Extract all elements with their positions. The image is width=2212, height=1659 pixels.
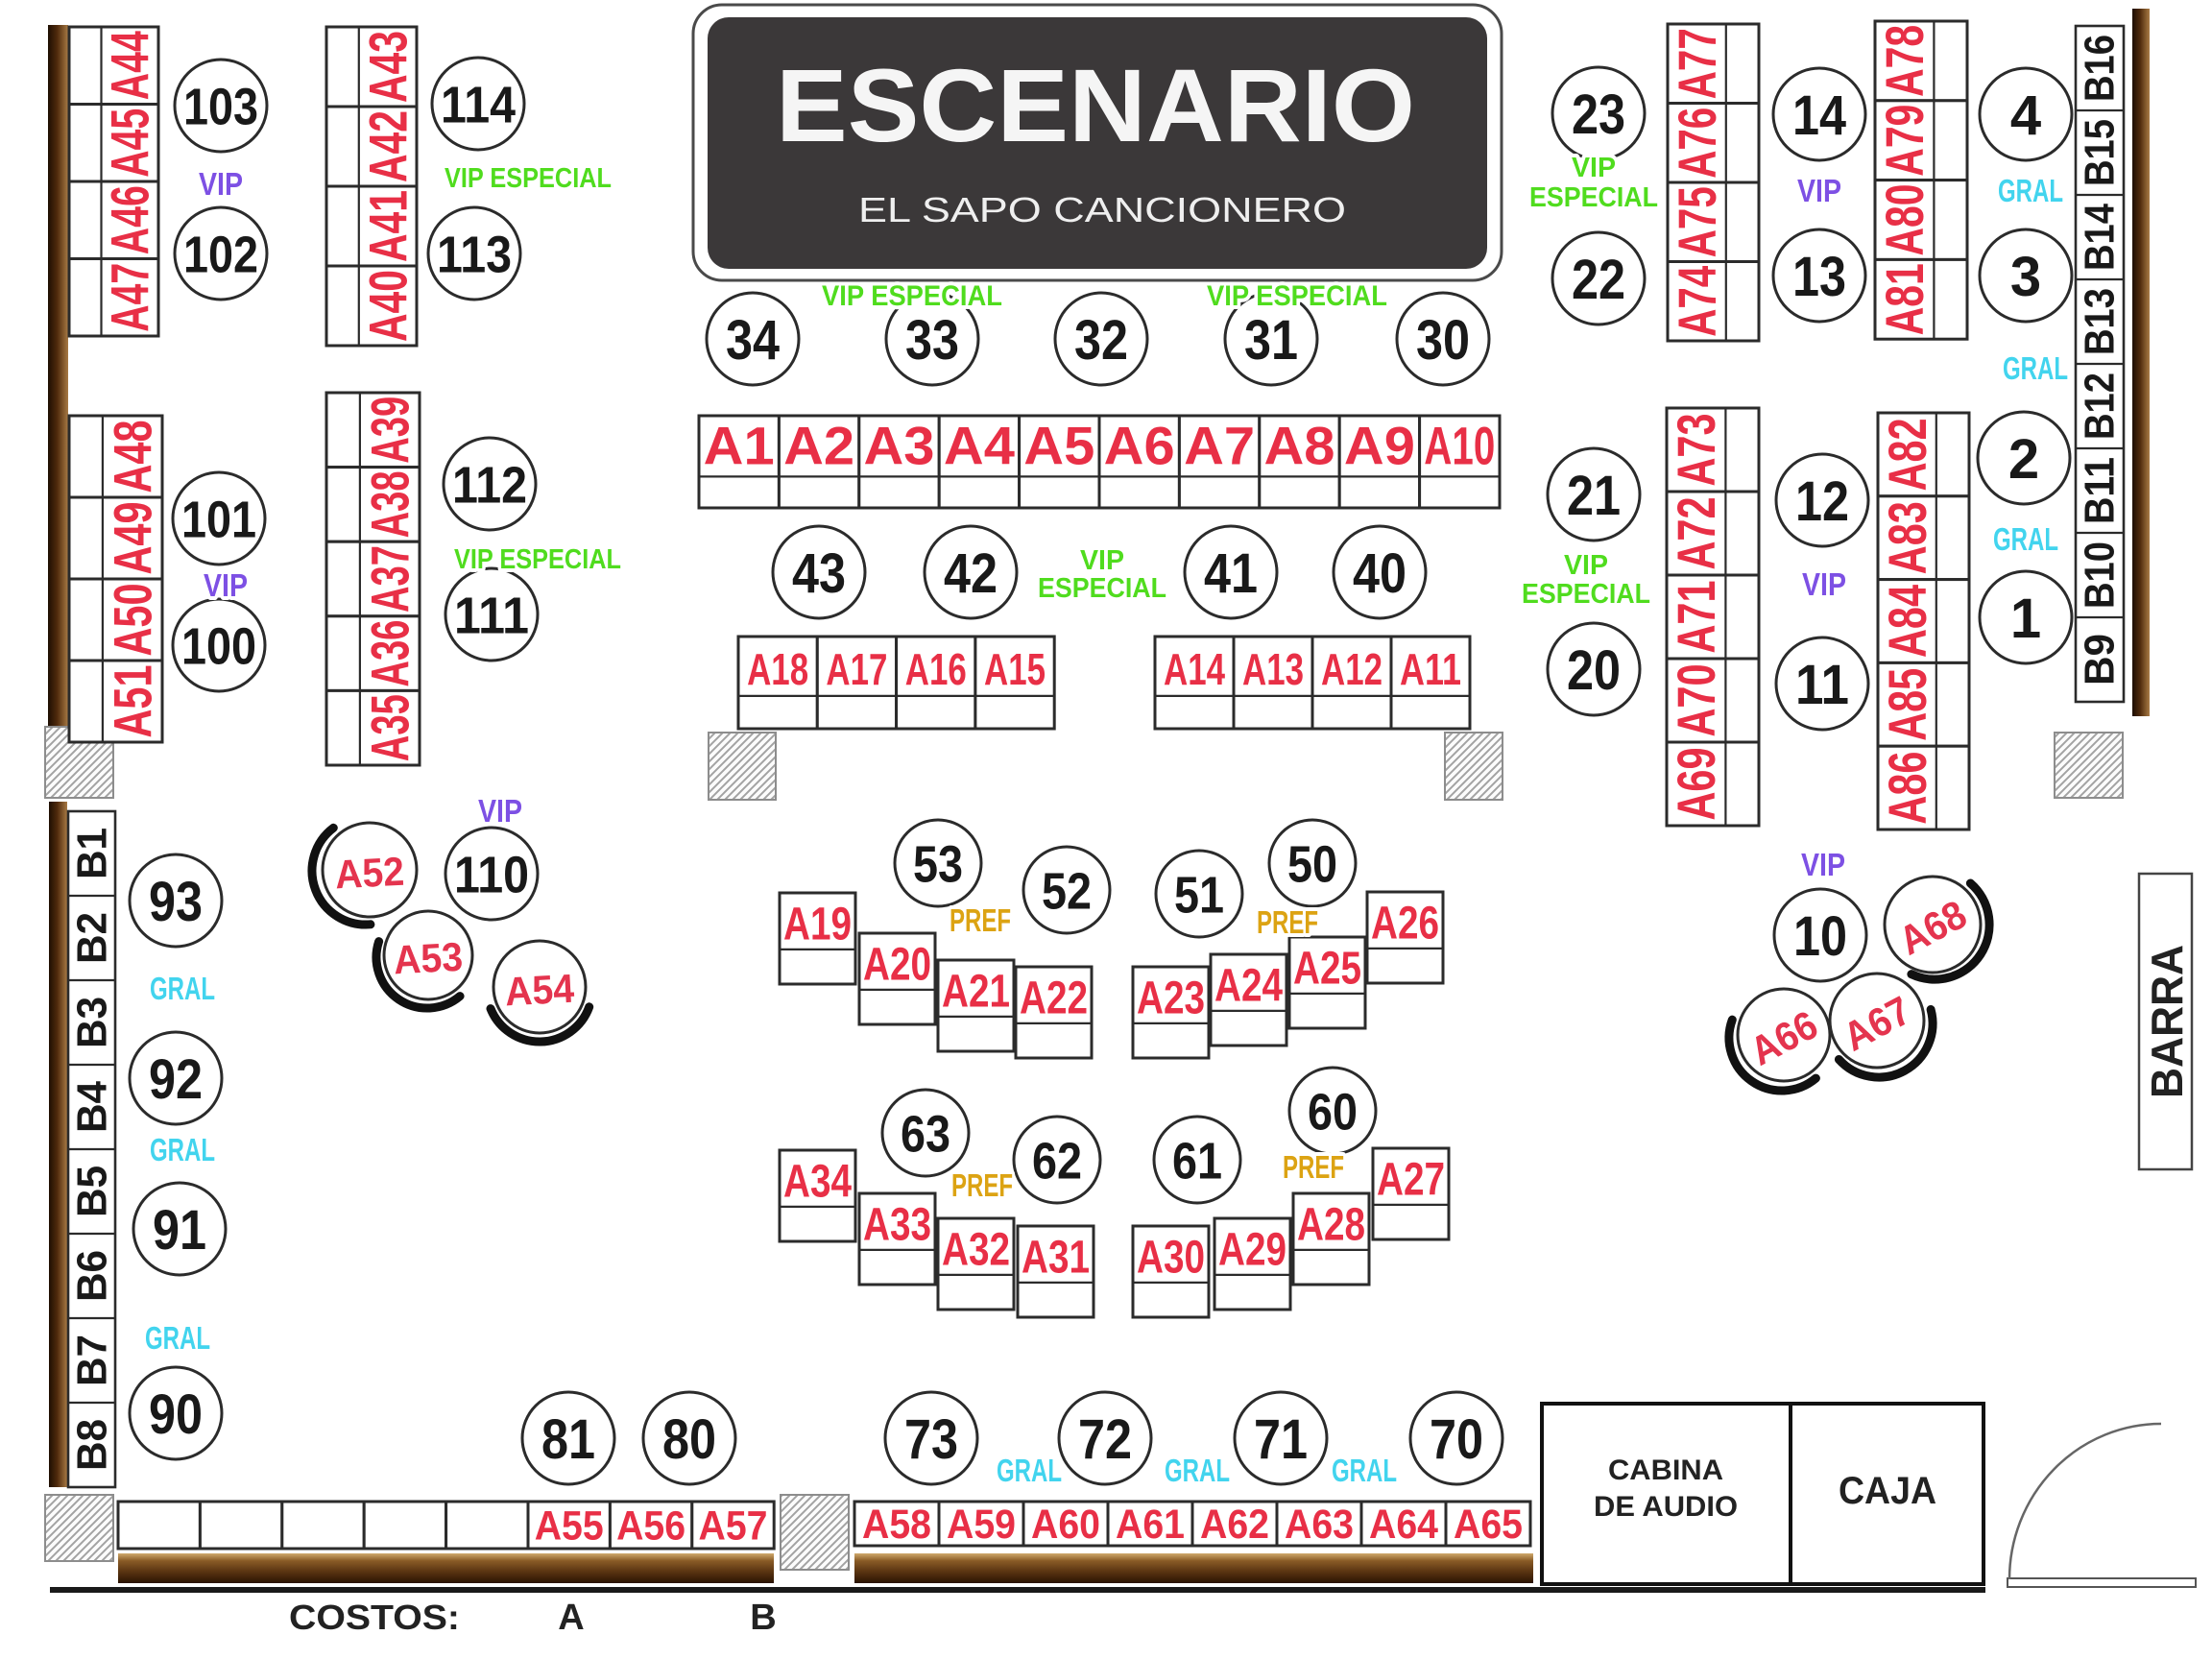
svg-text:A26: A26 — [1371, 899, 1439, 950]
svg-text:93: 93 — [149, 871, 203, 933]
svg-text:62: 62 — [1032, 1132, 1082, 1190]
svg-text:B3: B3 — [69, 997, 116, 1048]
svg-text:B10: B10 — [2077, 541, 2124, 609]
svg-text:ESPECIAL: ESPECIAL — [1529, 182, 1658, 213]
svg-text:22: 22 — [1572, 249, 1625, 311]
svg-text:A65: A65 — [1454, 1502, 1523, 1548]
svg-text:A23: A23 — [1137, 974, 1205, 1024]
svg-text:A47: A47 — [100, 263, 160, 332]
svg-text:B: B — [750, 1598, 776, 1638]
svg-text:51: 51 — [1174, 866, 1224, 924]
svg-text:A80: A80 — [1874, 184, 1935, 256]
svg-text:20: 20 — [1567, 639, 1621, 702]
svg-text:A15: A15 — [984, 644, 1046, 694]
svg-text:GRAL: GRAL — [1998, 173, 2063, 208]
svg-text:A33: A33 — [863, 1200, 931, 1251]
svg-text:VIP: VIP — [199, 166, 243, 202]
svg-text:A25: A25 — [1293, 944, 1361, 995]
svg-text:34: 34 — [726, 309, 780, 372]
svg-text:B5: B5 — [69, 1166, 116, 1217]
svg-text:A75: A75 — [1667, 186, 1727, 257]
svg-text:12: 12 — [1795, 470, 1849, 533]
svg-text:VIP ESPECIAL: VIP ESPECIAL — [454, 544, 621, 575]
svg-text:A21: A21 — [942, 967, 1010, 1018]
svg-text:VIP: VIP — [1564, 550, 1608, 581]
svg-text:GRAL: GRAL — [1332, 1453, 1397, 1488]
svg-text:A12: A12 — [1321, 644, 1382, 694]
svg-text:101: 101 — [181, 491, 256, 548]
svg-text:1: 1 — [2010, 588, 2041, 650]
svg-text:A6: A6 — [1104, 416, 1175, 476]
svg-text:A72: A72 — [1666, 497, 1726, 570]
svg-text:80: 80 — [662, 1408, 716, 1471]
svg-text:COSTOS:: COSTOS: — [289, 1598, 460, 1637]
svg-text:A54: A54 — [504, 966, 576, 1015]
svg-text:B9: B9 — [2077, 634, 2124, 685]
svg-text:110: 110 — [454, 846, 529, 903]
svg-text:103: 103 — [183, 78, 258, 135]
svg-text:A42: A42 — [357, 110, 418, 182]
svg-text:A35: A35 — [360, 694, 421, 761]
svg-text:A24: A24 — [1214, 961, 1283, 1012]
svg-text:A81: A81 — [1874, 263, 1935, 335]
svg-text:B6: B6 — [69, 1250, 116, 1302]
svg-text:71: 71 — [1254, 1408, 1308, 1471]
svg-text:A53: A53 — [393, 934, 464, 983]
svg-text:21: 21 — [1567, 465, 1621, 527]
svg-text:A48: A48 — [103, 421, 163, 493]
svg-text:A82: A82 — [1877, 418, 1937, 491]
svg-text:VIP ESPECIAL: VIP ESPECIAL — [822, 280, 1002, 312]
svg-text:A11: A11 — [1400, 644, 1461, 694]
svg-text:A39: A39 — [360, 397, 421, 464]
svg-text:42: 42 — [944, 542, 998, 605]
svg-text:52: 52 — [1042, 862, 1092, 920]
svg-text:B2: B2 — [69, 912, 116, 964]
svg-text:43: 43 — [792, 542, 846, 605]
svg-text:B14: B14 — [2077, 204, 2124, 271]
svg-text:ESPECIAL: ESPECIAL — [1038, 573, 1166, 604]
svg-text:GRAL: GRAL — [150, 971, 215, 1006]
svg-text:DE AUDIO: DE AUDIO — [1594, 1491, 1738, 1523]
svg-text:A14: A14 — [1164, 644, 1225, 694]
svg-text:A31: A31 — [1022, 1233, 1090, 1284]
svg-text:A78: A78 — [1874, 25, 1935, 97]
svg-text:A58: A58 — [862, 1502, 931, 1548]
svg-text:VIP: VIP — [1080, 545, 1124, 576]
svg-text:PREF: PREF — [950, 902, 1011, 938]
svg-text:A36: A36 — [360, 620, 421, 687]
svg-text:2: 2 — [2008, 428, 2039, 491]
svg-text:41: 41 — [1204, 542, 1258, 605]
svg-text:BARRA: BARRA — [2142, 945, 2192, 1098]
svg-text:60: 60 — [1308, 1083, 1358, 1141]
svg-text:63: 63 — [901, 1105, 950, 1163]
svg-text:A64: A64 — [1369, 1502, 1438, 1548]
svg-text:PREF: PREF — [1283, 1149, 1344, 1185]
svg-text:A79: A79 — [1874, 105, 1935, 177]
svg-text:30: 30 — [1416, 309, 1470, 372]
svg-text:A83: A83 — [1877, 501, 1937, 574]
svg-text:A70: A70 — [1666, 664, 1726, 737]
svg-text:A45: A45 — [100, 108, 160, 178]
svg-text:B12: B12 — [2077, 373, 2124, 440]
svg-text:A85: A85 — [1877, 668, 1937, 741]
svg-text:81: 81 — [541, 1408, 595, 1471]
svg-text:3: 3 — [2010, 246, 2041, 308]
svg-text:A86: A86 — [1877, 752, 1937, 825]
svg-text:A9: A9 — [1344, 416, 1415, 476]
svg-text:40: 40 — [1353, 542, 1407, 605]
svg-text:B15: B15 — [2077, 119, 2124, 186]
svg-text:EL SAPO CANCIONERO: EL SAPO CANCIONERO — [858, 190, 1346, 229]
svg-text:14: 14 — [1792, 84, 1846, 147]
svg-text:32: 32 — [1074, 309, 1128, 372]
svg-text:33: 33 — [905, 309, 959, 372]
svg-text:111: 111 — [454, 587, 529, 644]
svg-text:CABINA: CABINA — [1608, 1455, 1723, 1486]
svg-text:A41: A41 — [357, 190, 418, 262]
svg-text:A5: A5 — [1023, 416, 1094, 476]
svg-text:A59: A59 — [947, 1502, 1016, 1548]
svg-text:A57: A57 — [699, 1503, 768, 1550]
svg-text:23: 23 — [1572, 84, 1625, 146]
svg-text:A77: A77 — [1667, 28, 1727, 99]
svg-text:A73: A73 — [1666, 414, 1726, 487]
svg-text:13: 13 — [1792, 246, 1846, 308]
svg-text:VIP: VIP — [204, 567, 248, 603]
svg-text:A50: A50 — [103, 584, 163, 657]
svg-text:53: 53 — [913, 835, 963, 893]
svg-text:73: 73 — [904, 1408, 958, 1471]
svg-text:A28: A28 — [1297, 1200, 1365, 1251]
svg-text:PREF: PREF — [1257, 904, 1318, 940]
svg-text:GRAL: GRAL — [1993, 521, 2058, 557]
svg-text:50: 50 — [1287, 835, 1337, 893]
svg-text:A30: A30 — [1137, 1233, 1205, 1284]
svg-text:A32: A32 — [942, 1225, 1010, 1276]
svg-text:11: 11 — [1795, 654, 1849, 716]
svg-text:A18: A18 — [747, 644, 808, 694]
svg-text:ESPECIAL: ESPECIAL — [1522, 579, 1650, 610]
svg-text:VIP: VIP — [1801, 847, 1845, 882]
svg-text:A63: A63 — [1285, 1502, 1354, 1548]
svg-text:A40: A40 — [357, 270, 418, 342]
svg-text:B4: B4 — [69, 1080, 116, 1133]
svg-text:A51: A51 — [103, 665, 163, 738]
svg-text:B11: B11 — [2077, 457, 2124, 524]
svg-text:31: 31 — [1244, 309, 1298, 372]
svg-text:CAJA: CAJA — [1839, 1470, 1936, 1512]
svg-text:91: 91 — [153, 1199, 206, 1262]
svg-text:PREF: PREF — [951, 1167, 1013, 1203]
svg-text:A17: A17 — [826, 644, 887, 694]
svg-text:A44: A44 — [100, 31, 160, 100]
svg-text:A: A — [558, 1598, 584, 1638]
svg-text:A46: A46 — [100, 185, 160, 254]
svg-text:GRAL: GRAL — [145, 1320, 210, 1356]
svg-text:A62: A62 — [1200, 1502, 1269, 1548]
svg-text:A60: A60 — [1031, 1502, 1100, 1548]
svg-text:92: 92 — [149, 1048, 203, 1111]
svg-text:A69: A69 — [1666, 748, 1726, 821]
svg-text:B7: B7 — [69, 1334, 116, 1386]
svg-text:A2: A2 — [783, 416, 854, 476]
svg-text:102: 102 — [183, 226, 258, 283]
svg-text:A8: A8 — [1264, 416, 1335, 476]
svg-text:A27: A27 — [1377, 1155, 1445, 1206]
svg-text:A49: A49 — [103, 502, 163, 575]
svg-text:GRAL: GRAL — [150, 1132, 215, 1167]
svg-text:A16: A16 — [905, 644, 967, 694]
svg-text:A43: A43 — [357, 31, 418, 103]
svg-text:A34: A34 — [783, 1157, 852, 1208]
svg-text:VIP: VIP — [1802, 566, 1846, 602]
svg-text:A7: A7 — [1184, 416, 1255, 476]
svg-text:B16: B16 — [2077, 35, 2124, 102]
svg-text:A19: A19 — [783, 900, 852, 950]
svg-text:A61: A61 — [1116, 1502, 1185, 1548]
svg-text:GRAL: GRAL — [1165, 1453, 1230, 1488]
svg-text:A20: A20 — [863, 940, 931, 991]
svg-text:B13: B13 — [2077, 288, 2124, 355]
svg-text:VIP: VIP — [1572, 153, 1616, 183]
svg-text:GRAL: GRAL — [997, 1453, 1062, 1488]
svg-text:A84: A84 — [1877, 585, 1937, 658]
svg-text:VIP: VIP — [478, 793, 522, 829]
svg-text:72: 72 — [1078, 1408, 1132, 1471]
svg-text:VIP ESPECIAL: VIP ESPECIAL — [1207, 280, 1387, 312]
svg-text:A71: A71 — [1666, 581, 1726, 654]
svg-text:61: 61 — [1172, 1132, 1222, 1190]
svg-text:A38: A38 — [360, 470, 421, 538]
svg-text:B8: B8 — [69, 1419, 116, 1471]
svg-text:90: 90 — [149, 1383, 203, 1446]
svg-text:A56: A56 — [616, 1503, 685, 1550]
svg-text:A3: A3 — [864, 416, 935, 476]
svg-text:10: 10 — [1793, 905, 1847, 968]
svg-text:A74: A74 — [1667, 266, 1727, 337]
svg-text:A55: A55 — [535, 1503, 604, 1550]
svg-text:70: 70 — [1430, 1408, 1483, 1471]
svg-text:A13: A13 — [1242, 644, 1304, 694]
svg-text:A1: A1 — [704, 416, 775, 476]
svg-text:ESCENARIO: ESCENARIO — [776, 47, 1415, 163]
svg-text:A4: A4 — [944, 416, 1015, 476]
svg-text:GRAL: GRAL — [2003, 350, 2068, 386]
svg-text:113: 113 — [437, 226, 512, 283]
svg-text:A76: A76 — [1667, 108, 1727, 179]
svg-text:A10: A10 — [1424, 416, 1495, 476]
svg-text:A52: A52 — [334, 849, 405, 898]
svg-text:A29: A29 — [1218, 1225, 1286, 1276]
svg-text:B1: B1 — [69, 828, 116, 879]
svg-text:VIP: VIP — [1797, 173, 1841, 208]
svg-text:A22: A22 — [1020, 974, 1088, 1024]
svg-text:100: 100 — [181, 617, 256, 675]
svg-text:VIP ESPECIAL: VIP ESPECIAL — [445, 163, 612, 194]
svg-text:4: 4 — [2010, 84, 2041, 147]
svg-text:114: 114 — [441, 76, 516, 133]
svg-text:112: 112 — [452, 456, 527, 514]
svg-text:A37: A37 — [360, 545, 421, 613]
